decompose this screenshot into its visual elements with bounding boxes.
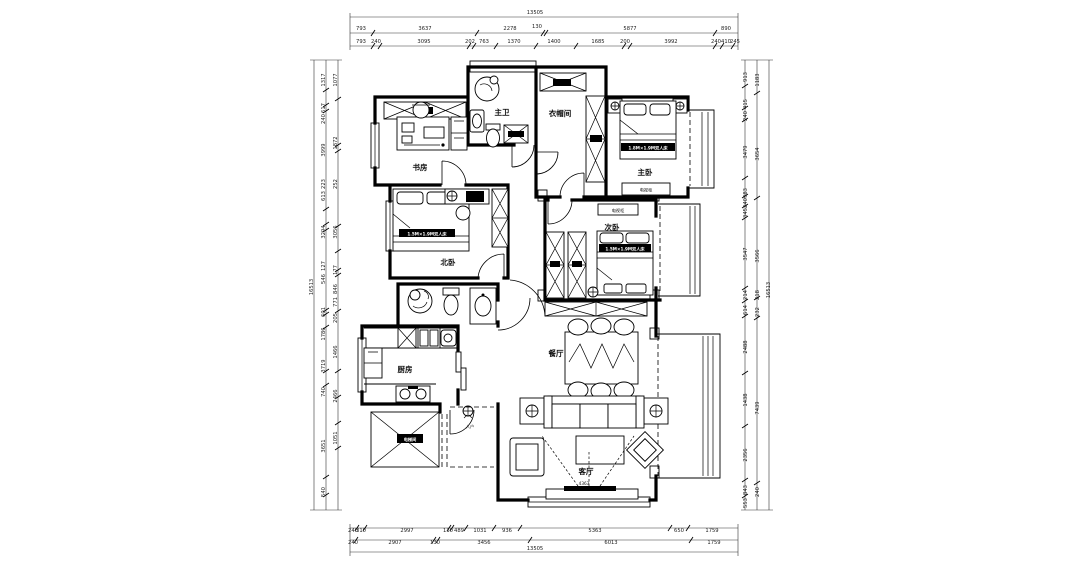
dim-label: 240 — [371, 39, 381, 45]
cloakroom-cabinets — [540, 73, 605, 182]
dim-label: 2466 — [333, 389, 339, 402]
dim-label: 3637 — [418, 26, 431, 32]
dim-label: 546 — [321, 274, 327, 284]
dim-label: 16513 — [309, 279, 315, 296]
dim-label: 7439 — [755, 401, 761, 414]
dim-label: 740 — [321, 387, 327, 397]
dim-label: 240 — [348, 540, 358, 546]
dim-label: 1759 — [707, 540, 720, 546]
dim-label: 1051 — [333, 431, 339, 444]
dim-label: 489 — [454, 528, 464, 534]
dim-label: 13505 — [527, 10, 544, 16]
dim-label: 771 — [333, 297, 339, 307]
dim-label: 205 — [333, 313, 339, 323]
dim-label: 936 — [502, 528, 512, 534]
dim-label: 240 — [755, 487, 761, 497]
dim-label: 3095 — [417, 39, 430, 45]
dim-label: 617 — [321, 103, 327, 113]
dim-label: 345 — [743, 208, 749, 218]
dim-label: 415 — [743, 99, 749, 109]
dim-label: 1031 — [473, 528, 486, 534]
dim-label: 1183 — [755, 73, 761, 86]
dim-label: 3479 — [743, 145, 749, 158]
dim-label: 793 — [356, 39, 366, 45]
tv-cabinet-second-label: 电视柜 — [612, 207, 625, 214]
dim-label: 218 — [755, 290, 761, 300]
dim-label: 177 — [333, 265, 339, 275]
dim-label: 1466 — [333, 345, 339, 358]
room-label-north-bedroom: 北卧 — [441, 257, 456, 267]
dim-label: 130 — [430, 540, 440, 546]
dim-label: 240 — [743, 111, 749, 121]
dim-label: 5363 — [588, 528, 601, 534]
floor-plan-canvas: 13505 793 3637 2278 130 5877 890 793 240… — [0, 0, 1074, 576]
dim-label: 2907 — [388, 540, 401, 546]
dim-label: 3056 — [333, 225, 339, 238]
dim-label: 1685 — [591, 39, 604, 45]
dim-label: 2488 — [743, 340, 749, 353]
room-label-entry: 入户 — [466, 423, 474, 430]
guest-bath-fixtures — [408, 288, 496, 324]
dim-label: 200 — [620, 39, 630, 45]
dim-label: 3547 — [743, 247, 749, 260]
dim-label: 232 — [755, 307, 761, 317]
north-bedroom-furniture — [393, 189, 508, 251]
tv-cabinet-master-label: 电视柜 — [640, 187, 653, 194]
dim-label: 540 — [321, 487, 327, 497]
dim-label: 2356 — [743, 448, 749, 461]
dim-label: 3294 — [321, 225, 327, 239]
dim-label: 650 — [674, 528, 684, 534]
dim-label: 245 — [730, 39, 740, 45]
room-label-living: 客厅 — [578, 466, 594, 476]
room-label-second-bedroom: 次卧 — [605, 222, 620, 232]
dim-label: 3719 — [321, 359, 327, 372]
furniture — [364, 73, 687, 499]
living-width-label: 4363 — [579, 481, 590, 486]
dim-label: 1370 — [507, 39, 520, 45]
room-label-elevator: 电梯间 — [404, 436, 417, 443]
dim-label: 614 — [743, 304, 749, 315]
dim-label: 130 — [532, 24, 542, 30]
dim-label: 1872 — [333, 136, 339, 149]
dim-label: 240 — [743, 198, 749, 208]
dim-label: 601 — [321, 307, 327, 317]
dim-label: 3999 — [321, 143, 327, 156]
room-label-dining: 餐厅 — [548, 348, 564, 358]
dim-label: 1759 — [705, 528, 718, 534]
dim-label: 3992 — [664, 39, 677, 45]
entry-elevator — [371, 406, 494, 467]
dim-label: 5877 — [623, 26, 636, 32]
dim-label: 2278 — [503, 26, 516, 32]
room-label-master-bedroom: 主卧 — [638, 167, 653, 177]
room-label-master-bath: 主卫 — [495, 107, 510, 117]
dim-label: 127 — [321, 261, 327, 271]
dim-label: 3566 — [755, 249, 761, 262]
dim-label: 793 — [356, 26, 366, 32]
dim-label: 223 — [321, 179, 327, 189]
dim-label: 913 — [743, 72, 749, 82]
dim-label: 613 — [321, 191, 327, 201]
dim-label: 240 — [711, 39, 721, 45]
dim-label: 2997 — [400, 528, 413, 534]
dim-label: 1317 — [321, 73, 327, 86]
dim-label: 252 — [333, 179, 339, 189]
dim-label: 763 — [479, 39, 489, 45]
dim-label: 240 — [321, 114, 327, 124]
dim-label: 890 — [721, 26, 731, 32]
dim-label: 3654 — [755, 147, 761, 161]
north-bed-label: 1.5M×1.9M双人床 — [407, 231, 447, 238]
dim-label: 214 — [743, 289, 749, 300]
dim-label: 846 — [333, 284, 339, 294]
dim-label: 310 — [356, 528, 366, 534]
room-label-cloakroom: 衣帽间 — [549, 108, 572, 118]
dim-label: 1786 — [321, 327, 327, 340]
dim-label: 1077 — [333, 73, 339, 86]
dim-label: 1438 — [743, 393, 749, 406]
room-label-study: 书房 — [413, 162, 428, 172]
study-furniture — [384, 102, 467, 150]
dim-label: 3651 — [321, 439, 327, 452]
dim-label: 16513 — [766, 282, 772, 299]
dim-label: 13505 — [527, 546, 544, 552]
room-label-kitchen: 厨房 — [398, 364, 413, 374]
dim-label: 3456 — [477, 540, 490, 546]
dim-label: 202 — [465, 39, 475, 45]
dim-label: 983 — [743, 188, 749, 198]
second-bed-label: 1.5M×1.9M双人床 — [605, 246, 645, 253]
dim-label: 1400 — [547, 39, 560, 45]
dim-label: 130 — [443, 528, 453, 534]
master-bed-label: 1.8M×1.9M双人床 — [628, 145, 668, 152]
dim-label: 6013 — [604, 540, 617, 546]
dim-label: 553 — [743, 498, 749, 508]
dim-label: 843 — [743, 485, 749, 495]
